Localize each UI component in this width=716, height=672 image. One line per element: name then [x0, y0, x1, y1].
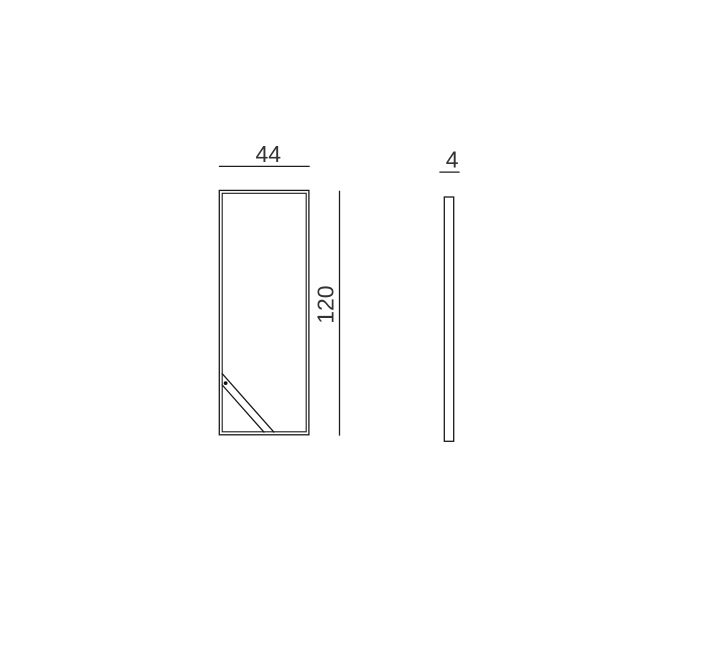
- svg-text:120: 120: [312, 285, 338, 323]
- svg-text:4: 4: [446, 147, 459, 173]
- svg-text:44: 44: [256, 141, 282, 167]
